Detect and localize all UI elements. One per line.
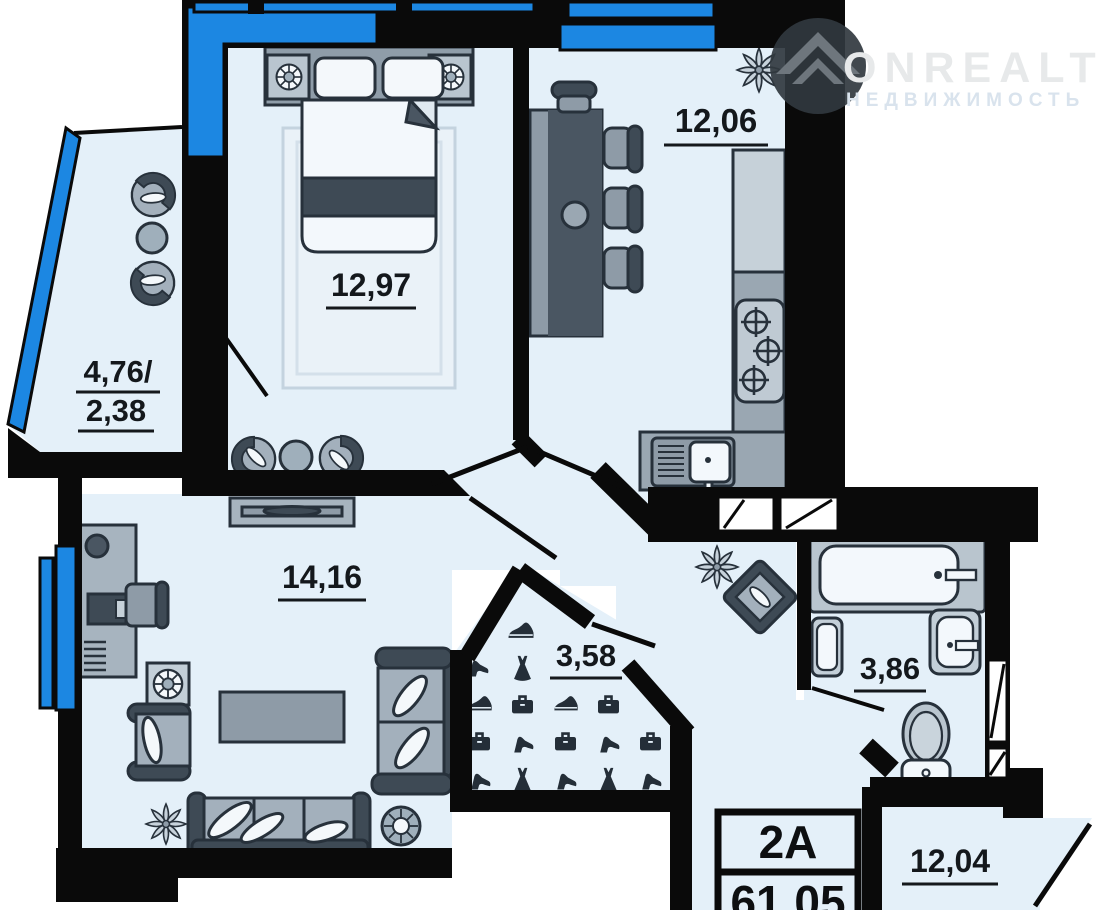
wardrobe-area-label: 3,58	[556, 638, 616, 673]
wall-bath-left	[797, 540, 811, 690]
unit-info-box: 2А 61,05	[718, 812, 858, 910]
plant-pot	[147, 663, 189, 705]
wall-bedroom-kitchen	[513, 45, 529, 440]
desk-plant-icon	[86, 535, 108, 557]
living-window-outer	[40, 558, 53, 708]
cabinet	[812, 618, 842, 676]
pillow	[383, 58, 443, 98]
wall-kitchen-right	[785, 45, 845, 542]
kitchen-window-top	[568, 2, 714, 18]
bedroom-area-label: 12,97	[331, 267, 411, 303]
side-table	[137, 223, 167, 253]
loggia-area-label-full: 4,76/	[84, 354, 153, 389]
lamp-icon	[277, 65, 302, 90]
console-dresser	[230, 498, 354, 526]
kitchen-counter-top	[733, 150, 785, 272]
coffee-table	[220, 692, 344, 742]
wall-loggia-bottom	[30, 452, 184, 478]
wall-hall-left	[670, 726, 692, 910]
toilet-icon	[902, 703, 950, 785]
brand-subtitle: НЕДВИЖИМОСТЬ	[846, 90, 1085, 111]
unit-area-label: 61,05	[730, 876, 845, 910]
wall-wardrobe-bottom	[450, 790, 690, 812]
pouf	[382, 807, 420, 845]
wall-bedroom-living	[182, 470, 444, 496]
dining-chair	[604, 246, 642, 292]
wall-corner-block	[56, 848, 178, 902]
unit-type-label: 2А	[759, 816, 818, 868]
wall-shaft-band	[648, 487, 1038, 542]
bathroom-area-label: 3,86	[860, 651, 920, 686]
window-strip-top	[194, 2, 534, 12]
corner-sofa	[372, 648, 452, 794]
dining-chair	[604, 126, 642, 172]
floorplan-page: 2А 61,05 12,97 12,06 4,76/ 2,38 14,16 3,…	[0, 0, 1096, 910]
brand-name: ONREALT	[843, 44, 1096, 92]
stove-icon	[736, 300, 784, 402]
plant-icon	[154, 670, 182, 698]
kitchen-area-label: 12,06	[675, 102, 758, 139]
dining-chair	[604, 186, 642, 232]
brand-logo: ONREALT НЕДВИЖИМОСТЬ	[770, 18, 1096, 114]
pillow	[315, 58, 375, 98]
armchair	[128, 704, 190, 780]
wall-corner-right	[1003, 768, 1043, 818]
living-window	[56, 546, 76, 710]
bathtub-icon	[810, 538, 985, 612]
washbasin-icon	[930, 610, 980, 674]
living-area-label: 14,16	[282, 559, 362, 595]
kitchen-window	[560, 24, 716, 50]
dining-chair	[552, 82, 596, 112]
wall-wardrobe-left	[450, 650, 472, 812]
wall-hall-right	[862, 787, 882, 910]
bed	[302, 100, 436, 252]
wall-bath-bottom	[870, 777, 1005, 807]
loggia-area-label-half: 2,38	[86, 393, 146, 428]
floorplan-drawing: 2А 61,05 12,97 12,06 4,76/ 2,38 14,16 3,…	[0, 0, 1096, 910]
plant-icon	[696, 546, 738, 588]
side-table	[280, 441, 312, 473]
desk-chair	[126, 582, 168, 628]
room2-area-label: 12,04	[910, 843, 990, 879]
dining-table	[530, 110, 602, 336]
plant-icon	[146, 804, 186, 844]
